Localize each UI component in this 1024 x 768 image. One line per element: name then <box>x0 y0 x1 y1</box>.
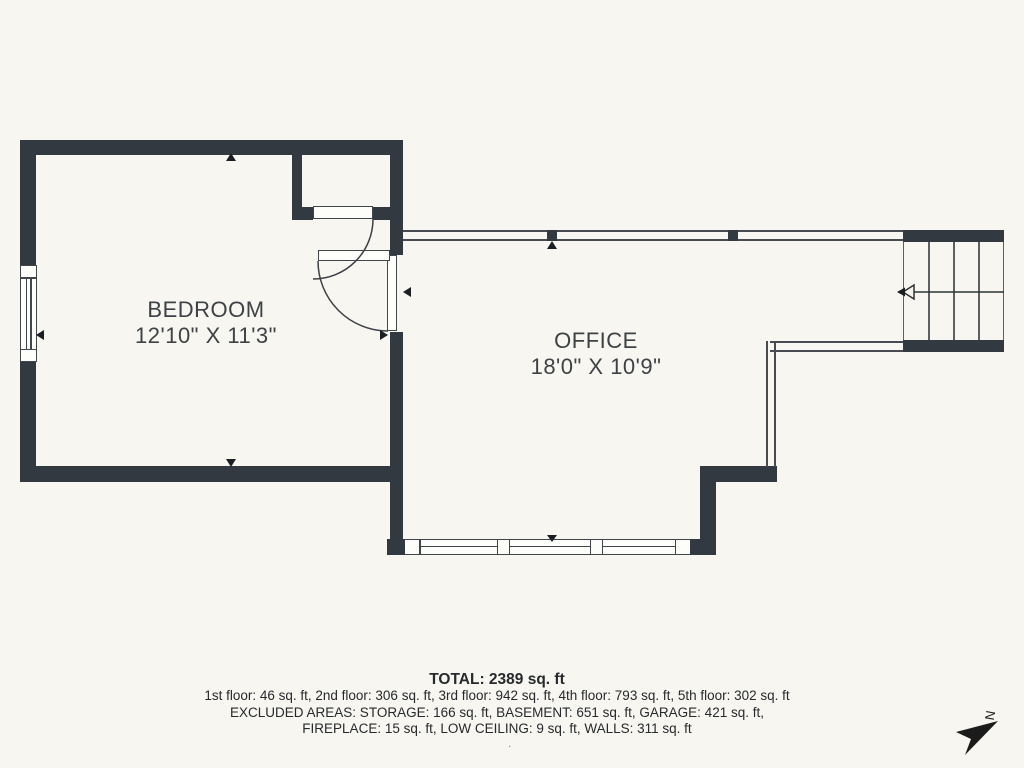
window-sill-line <box>21 277 36 279</box>
wall-bedroom-left-lower <box>20 362 36 482</box>
window-cap-line <box>419 540 421 554</box>
window-glazing-line <box>26 278 28 349</box>
railing-post <box>728 230 738 241</box>
dimension-marker-left-icon <box>403 287 411 297</box>
office-top-railing <box>403 230 903 241</box>
excluded-areas-line2: FIREPLACE: 15 sq. ft, LOW CEILING: 9 sq.… <box>0 721 994 738</box>
stairs-railing-vertical <box>766 341 776 467</box>
bedroom-label: BEDROOM 12'10" X 11'3" <box>86 297 326 349</box>
wall-closet-bottom-left <box>292 207 313 220</box>
office-bottom-window <box>405 539 690 555</box>
room-name: OFFICE <box>476 328 716 354</box>
wall-bedroom-right-upper <box>390 140 403 255</box>
stair-tread <box>953 242 955 340</box>
window-cap-line <box>675 540 677 554</box>
dimension-marker-up-icon <box>547 241 557 249</box>
dimension-marker-right-icon <box>380 330 388 340</box>
office-label: OFFICE 18'0" X 10'9" <box>476 328 716 380</box>
stairs-railing-horizontal <box>770 341 903 352</box>
bedroom-left-window <box>20 265 37 362</box>
window-glazing-line <box>420 546 675 548</box>
bedroom-door-leaf <box>318 250 390 261</box>
total-area: TOTAL: 2389 sq. ft <box>0 671 994 688</box>
wall-closet-bottom-right <box>373 207 403 220</box>
stair-tread <box>978 242 980 340</box>
room-dimensions: 12'10" X 11'3" <box>86 323 326 349</box>
window-mullion <box>497 540 510 554</box>
bedroom-door-swing-arc <box>318 261 388 331</box>
footnote-dot: . <box>508 736 511 750</box>
room-name: BEDROOM <box>86 297 326 323</box>
wall-bedroom-top <box>20 140 403 155</box>
room-dimensions: 18'0" X 10'9" <box>476 354 716 380</box>
floor-areas: 1st floor: 46 sq. ft, 2nd floor: 306 sq.… <box>0 688 994 705</box>
excluded-areas-line1: EXCLUDED AREAS: STORAGE: 166 sq. ft, BAS… <box>0 705 994 722</box>
stair-tread <box>928 242 930 340</box>
window-mullion <box>590 540 603 554</box>
staircase <box>903 242 1004 340</box>
railing-post <box>547 230 557 241</box>
wall-bedroom-right-lower <box>390 332 403 555</box>
wall-stairs-top <box>903 230 1004 242</box>
wall-bedroom-bottom <box>20 466 403 482</box>
plan-annotations: N <box>0 0 1024 768</box>
bedroom-door-jamb <box>387 255 397 331</box>
window-sill-line <box>21 349 36 351</box>
wall-office-step-vertical <box>700 466 716 555</box>
dimension-marker-left-icon <box>36 330 44 340</box>
wall-bedroom-left-upper <box>20 140 36 265</box>
closet-door-leaf <box>313 206 373 219</box>
area-summary: TOTAL: 2389 sq. ft 1st floor: 46 sq. ft,… <box>0 671 994 738</box>
closet-door-swing-arc <box>313 219 373 279</box>
floor-plan-canvas: N BEDROOM 12'10" X 11'3" OFFICE 18'0" X … <box>0 0 1024 768</box>
wall-stairs-bottom <box>903 340 1004 352</box>
window-glazing-line <box>30 278 32 349</box>
wall-office-bottom-left <box>387 539 405 555</box>
